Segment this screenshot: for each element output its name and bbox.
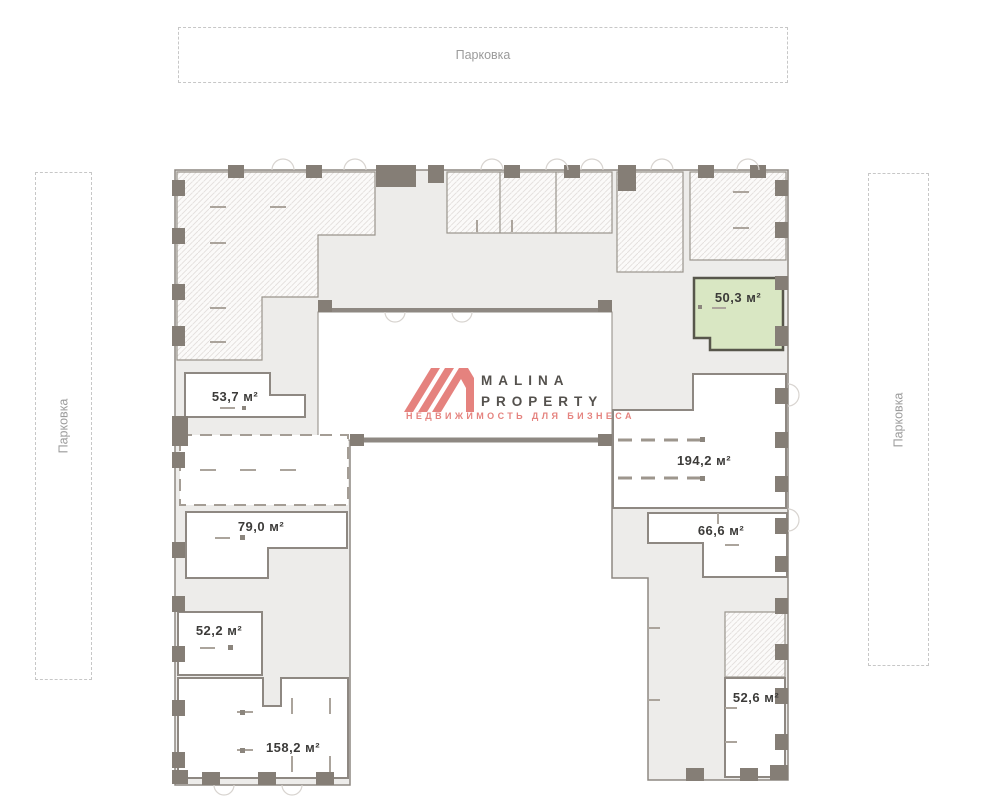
logo-m-icon <box>404 366 474 414</box>
unit-158-2-shape[interactable] <box>178 678 348 778</box>
logo-tagline: НЕДВИЖИМОСТЬ ДЛЯ БИЗНЕСА <box>406 411 635 421</box>
unit-79-0-label: 79,0 м² <box>238 519 285 534</box>
logo-name: MALINA PROPERTY <box>481 370 603 412</box>
company-logo: MALINA PROPERTY НЕДВИЖИМОСТЬ ДЛЯ БИЗНЕСА <box>404 364 599 426</box>
unit-66-6-label: 66,6 м² <box>698 523 745 538</box>
unit-52-2-shape[interactable] <box>178 612 262 675</box>
unit-50-3-shape[interactable] <box>694 278 783 350</box>
floor-plan-page: Парковка Парковка Парковка <box>0 0 995 800</box>
unit-158-2-label: 158,2 м² <box>266 740 320 755</box>
hatched-unit-top-middle <box>447 172 612 233</box>
unit-50-3-label: 50,3 м² <box>715 290 762 305</box>
unit-52-2-label: 52,2 м² <box>196 623 243 638</box>
logo-name-line2: PROPERTY <box>481 391 603 412</box>
unit-52-6-label: 52,6 м² <box>733 690 780 705</box>
hatched-unit-top-right <box>690 172 786 260</box>
unit-194-2-label: 194,2 м² <box>677 453 731 468</box>
logo-name-line1: MALINA <box>481 370 603 391</box>
unit-53-7-label: 53,7 м² <box>212 389 259 404</box>
